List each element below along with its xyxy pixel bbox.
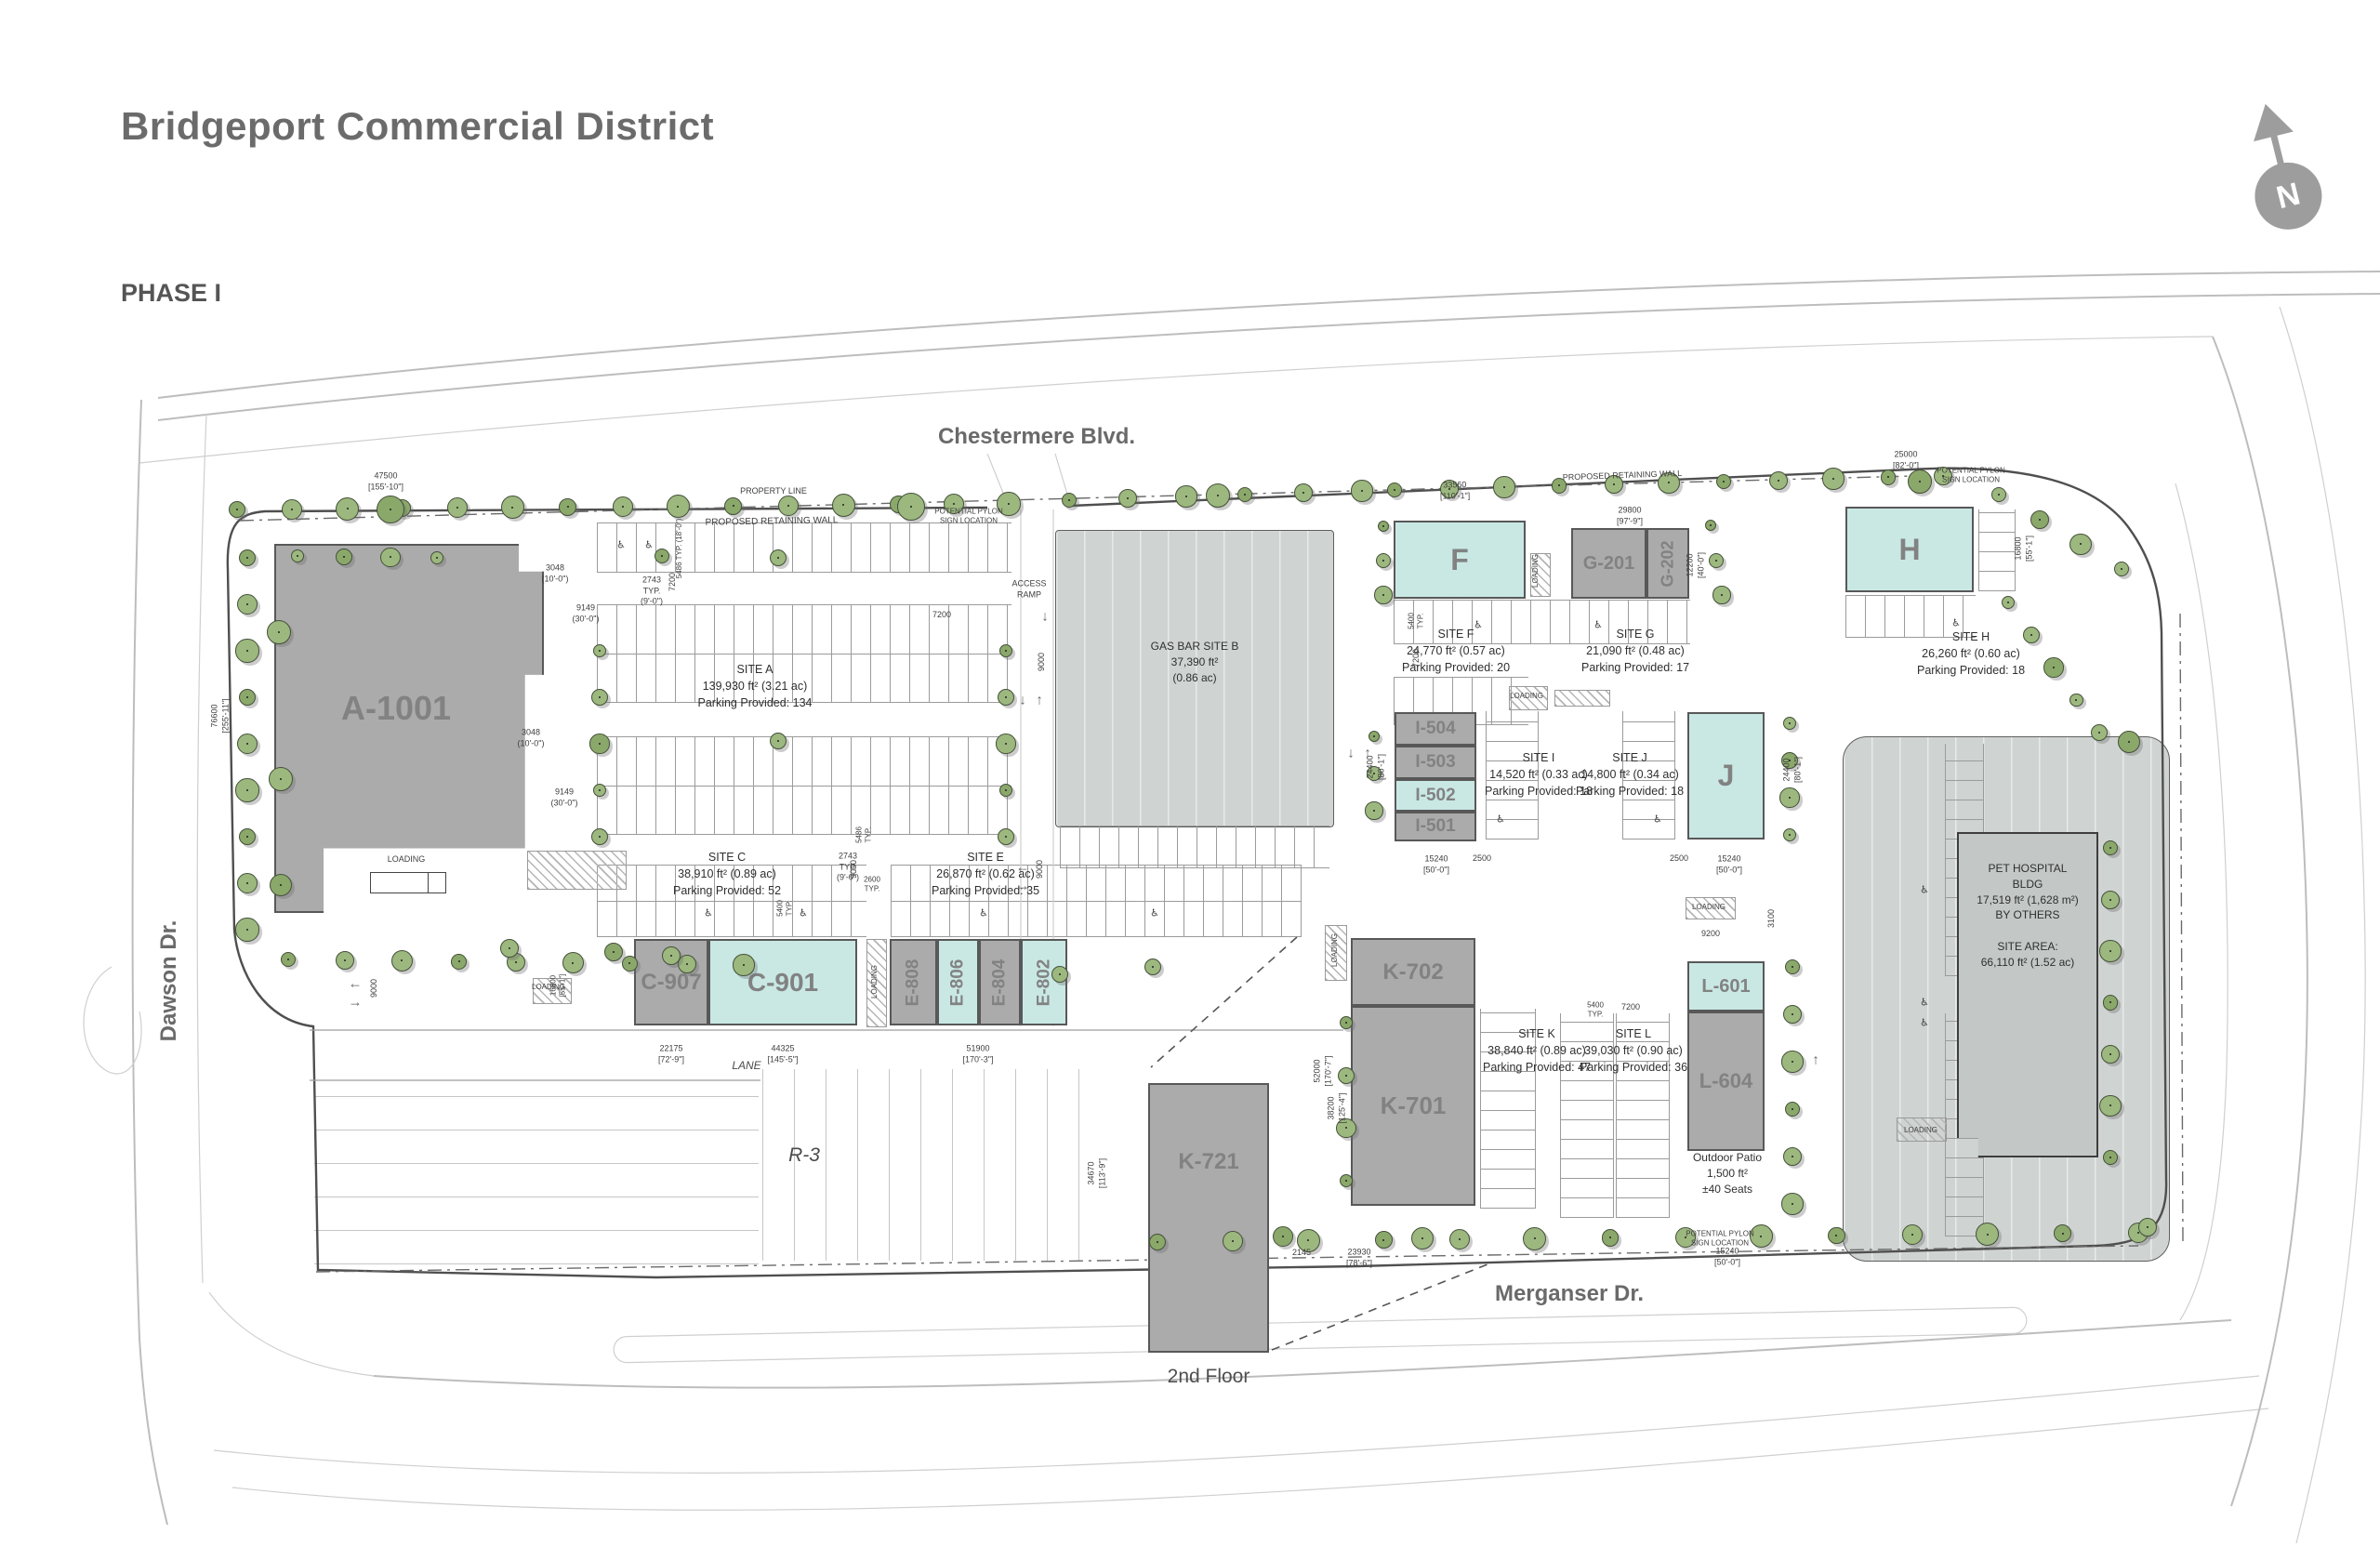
annotation-31: 9000 [1035,860,1046,879]
tree [1375,1231,1393,1249]
site-area: 26,260 ft² (0.60 ac) [1917,645,2025,662]
tree [391,950,413,972]
annotation-18: 9149 (30'-0") [551,787,578,808]
building-label-k-721: K-721 [1178,1149,1238,1175]
annotation-6: ACCESS RAMP [1011,578,1046,600]
tree [235,918,258,941]
annotation-52: 23930 [78'-6"] [1346,1247,1372,1268]
site-name: SITE C [673,849,781,866]
building-i-504: I-504 [1395,712,1476,746]
annotation-40: 2500 [1473,853,1491,865]
building-label-k-701: K-701 [1381,1091,1447,1120]
road-label-merganser: Merganser Dr. [1495,1281,1644,1307]
annotation-34: 29800 [97'-9"] [1617,505,1643,526]
second-floor-label: 2nd Floor [1168,1366,1250,1388]
tree [654,549,669,563]
annotation-33: 33560 [110'-1"] [1440,480,1471,502]
annotation-7: LOADING [388,854,426,866]
tree [1523,1227,1546,1250]
handicap-icon: ♿ [1951,617,1961,629]
tree [1051,966,1068,983]
tree [2103,995,2119,1011]
direction-arrow-icon: ↓ [1347,746,1355,761]
annotation-41: 2500 [1670,853,1688,865]
tree [1351,480,1372,501]
annotation-15: 47500 [155'-10"] [368,470,403,492]
building-label-a-1001: A-1001 [341,689,451,728]
site-label-site-c: SITE C38,910 ft² (0.89 ac)Parking Provid… [673,849,781,899]
annotation-23: 7200 [668,573,679,591]
site-label-site-g: SITE G21,090 ft² (0.48 ac)Parking Provid… [1581,626,1689,676]
tree [559,498,576,516]
tree [2069,534,2091,555]
tree [2099,1095,2121,1117]
building-i-503: I-503 [1395,746,1476,779]
tree [662,946,681,965]
direction-arrow-icon: ↑ [1364,746,1371,761]
annotation-38: 16800 [55'-1"] [549,974,569,998]
annotation-26: 5486 TYP. [855,826,875,843]
annotation-13: LOADING [1692,903,1725,912]
tree [1783,1005,1802,1024]
annotation-17: 9149 (30'-0") [573,602,600,624]
annotation-58: 5400 TYP. [1408,613,1427,629]
tree [2114,562,2130,577]
tree [447,497,468,518]
building-k-702: K-702 [1351,938,1475,1006]
building-label-f: F [1450,543,1469,577]
tree [2043,657,2063,677]
annotation-16: 76600 [255'-11"] [209,698,231,733]
annotation-24: 7200 [932,610,951,621]
site-name: SITE A [698,661,813,678]
site-label-site-a: SITE A139,930 ft² (3.21 ac)Parking Provi… [698,661,813,711]
building-l-601: L-601 [1687,961,1765,1011]
building-label-j: J [1718,759,1735,793]
tree [270,874,292,896]
handicap-icon: ♿ [616,539,626,551]
tree [2030,510,2049,529]
parking-zone-5 [1060,826,1329,868]
tree [1781,1193,1803,1214]
tree [501,496,524,519]
annotation-39: 15240 [50'-0"] [1423,853,1449,875]
direction-arrow-icon: → [1016,879,1030,894]
tree [282,499,302,520]
tree [1716,474,1732,490]
direction-arrow-icon: ← [1016,860,1030,876]
handicap-icon: ♿ [1920,884,1929,896]
tree [229,501,246,519]
site-label-site-j: SITE J14,800 ft² (0.34 ac)Parking Provid… [1576,749,1684,800]
tree [1781,1051,1803,1072]
handicap-icon: ♿ [979,907,988,919]
building-e-806: E-806 [937,939,979,1025]
loading-hatch-0 [527,851,627,890]
tree [1144,959,1161,975]
building-label-l-601: L-601 [1701,976,1750,998]
tree [832,494,855,517]
tree [770,733,787,749]
tree [1785,1102,1801,1117]
tree [267,620,291,644]
tree [604,943,623,961]
annotation-14: LOADING [1904,1126,1937,1135]
building-g-202: G-202 [1646,528,1689,599]
site-name: SITE L [1580,1025,1687,1042]
tree [1783,828,1797,842]
building-label-h: H [1898,533,1920,567]
handicap-icon: ♿ [799,907,808,919]
building-label-c-901: C-901 [747,968,818,998]
building-label-i-502: I-502 [1415,786,1455,806]
site-label-site-k: SITE K38,840 ft² (0.89 ac)Parking Provid… [1483,1025,1591,1076]
building-label-e-804: E-804 [990,959,1011,1006]
tree [1712,586,1730,603]
tree [1118,489,1137,508]
annotation-4: POTENTIAL PYLON SIGN LOCATION [1937,467,2005,486]
tree [589,734,609,753]
annotation-37: 16800 [55'-1"] [2013,535,2034,562]
site-parking: Parking Provided: 36 [1580,1059,1687,1076]
pet-hospital-label: PET HOSPITAL BLDG 17,519 ft² (1,628 m²) … [1977,861,2078,971]
site-name: SITE J [1576,749,1684,766]
tree [1368,731,1381,743]
annotation-9: LOADING [870,965,879,998]
annotation-45: 22175 [72'-9"] [658,1043,684,1064]
tree [1908,469,1932,494]
annotation-57: 7200 [1621,1002,1640,1013]
site-parking: Parking Provided: 18 [1576,783,1684,800]
tree [1062,493,1078,509]
annotation-20: 3048 (10'-0") [518,727,545,748]
site-area: 139,930 ft² (3.21 ac) [698,678,813,694]
tree [451,954,467,970]
building-f: F [1394,521,1526,599]
annotation-50: 34670 [113'-9"] [1086,1158,1107,1188]
tree [281,952,297,968]
annotation-11: LOADING [1531,554,1540,588]
site-area: 38,840 ft² (0.89 ac) [1483,1042,1591,1059]
building-k-701: K-701 [1351,1006,1475,1206]
tree [380,548,400,567]
handicap-icon: ♿ [1920,997,1929,1009]
annotation-19: 3048 (10'-0") [542,562,569,584]
tree [336,951,354,970]
site-area: 39,030 ft² (0.90 ac) [1580,1042,1687,1059]
building-label-g-201: G-201 [1583,553,1635,575]
tree [237,873,258,893]
tree [1822,468,1844,489]
direction-arrow-icon: ← [349,976,363,992]
tree [1294,483,1313,502]
annotation-46: 44325 [145'-5"] [768,1043,799,1064]
building-label-l-604: L-604 [1699,1069,1752,1093]
handicap-icon: ♿ [1653,813,1662,826]
tree [239,689,257,707]
lane-label: LANE [732,1059,760,1072]
site-area: 21,090 ft² (0.48 ac) [1581,642,1689,659]
road-label-chestermere: Chestermere Blvd. [938,424,1135,450]
tree [336,549,352,565]
tree [1387,483,1403,498]
tree [1411,1227,1434,1249]
tree [239,549,257,567]
tree [897,493,925,521]
handicap-icon: ♿ [1920,1017,1929,1029]
tree [1769,471,1788,490]
building-l-604: L-604 [1687,1011,1765,1151]
tree [2101,891,2120,909]
tree [1902,1224,1923,1245]
tree [998,689,1014,706]
site-name: SITE H [1917,628,2025,645]
tree [1709,553,1724,568]
direction-arrow-icon: → [349,995,363,1011]
tree [2002,596,2016,610]
tree [269,767,293,791]
tree [237,734,258,754]
tree [1378,521,1390,533]
building-e-808: E-808 [890,939,937,1025]
road-label-dawson: Dawson Dr. [156,920,182,1042]
tree [1273,1226,1293,1247]
building-label-i-503: I-503 [1415,752,1455,773]
annotation-21: 2743 TYP. (9'-0") [641,575,663,607]
building-label-i-504: I-504 [1415,719,1455,739]
parking-zone-10 [1978,509,2016,591]
annotation-29: 9000 [1037,653,1048,671]
tree [1365,801,1382,819]
building-label-e-808: E-808 [904,959,924,1006]
tree [1785,959,1801,975]
direction-arrow-icon: ↑ [1036,693,1043,708]
direction-arrow-icon: ↑ [1812,1052,1819,1068]
building-h: H [1845,507,1974,592]
annotation-10: LOADING [1330,933,1340,967]
site-parking: Parking Provided: 47 [1483,1059,1591,1076]
parking-zone-0 [597,522,1011,573]
annotation-54: 9200 [1701,929,1720,940]
tree [1338,1067,1355,1084]
tree [2069,694,2083,707]
handicap-icon: ♿ [1474,619,1483,631]
handicap-icon: ♿ [704,907,713,919]
gas-bar-site-b-label: GAS BAR SITE B 37,390 ft² (0.86 ac) [1151,639,1239,685]
tree [1779,787,1799,807]
tree [336,497,359,521]
annotation-47: 51900 [170'-3"] [963,1043,994,1064]
building-label-i-501: I-501 [1415,816,1455,837]
tree [2099,940,2121,961]
north-arrow-circle: N [2248,155,2329,236]
tree [237,594,258,615]
annotation-30: 9000 [849,860,860,879]
loading-truck-icon [370,872,446,893]
building-label-e-806: E-806 [948,959,969,1006]
tree [562,952,584,973]
tree [1175,485,1197,507]
annotation-48: 52000 [170'-7"] [1312,1056,1333,1087]
tree [2101,1045,2120,1064]
site-name: SITE K [1483,1025,1591,1042]
tree [667,495,690,518]
outdoor-patio-label: Outdoor Patio 1,500 ft² ±40 Seats [1693,1150,1762,1197]
annotation-22: 5486 TYP. (18'-0") [675,519,684,579]
tree [2118,731,2140,753]
annotation-44: 24400 [80'-1"] [1781,757,1803,783]
tree [1991,487,2007,503]
site-label-site-h: SITE H26,260 ft² (0.60 ac)Parking Provid… [1917,628,2025,679]
annotation-42: 15240 [50'-0"] [1716,853,1742,875]
building-i-502: I-502 [1395,779,1476,812]
tree [591,828,608,845]
tree [996,734,1015,753]
building-label-c-907: C-907 [641,970,701,996]
tree [1881,469,1897,485]
building-g-201: G-201 [1571,528,1646,599]
tree [2023,627,2040,643]
building-c-901: C-901 [708,939,857,1025]
annotation-12: LOADING [1510,692,1543,701]
tree [1237,487,1253,503]
tree [998,828,1014,845]
direction-arrow-icon: ↓ [1041,609,1049,625]
annotation-28: 5400 TYP. [776,900,796,917]
annotation-56: 5400 TYP. [1587,1001,1604,1021]
site-plan-page: Bridgeport Commercial District PHASE I N [0,0,2380,1547]
building-i-501: I-501 [1395,812,1476,841]
tree [2138,1218,2157,1236]
tree [1376,553,1391,568]
building-label-e-802: E-802 [1034,959,1054,1006]
zone-label-r3: R-3 [788,1144,820,1167]
handicap-icon: ♿ [1593,619,1603,631]
tree [235,639,258,662]
tree [591,689,608,706]
tree [1705,520,1717,532]
annotation-51: 2145 [1292,1248,1311,1259]
site-area: 38,910 ft² (0.89 ac) [673,866,781,882]
annotation-35: 25000 [82'-0"] [1893,449,1919,470]
site-parking: Parking Provided: 52 [673,882,781,899]
tree [1374,586,1392,603]
tree [2091,724,2108,741]
phase-label: PHASE I [121,279,221,308]
building-j: J [1687,712,1765,840]
handicap-icon: ♿ [644,539,654,551]
tree [235,778,258,801]
r3-future-lot-left [314,1080,759,1264]
tree [500,939,519,958]
tree [239,828,257,846]
annotation-27: 2600 TYP. [864,876,880,895]
tree [1828,1227,1845,1245]
tree [678,955,696,973]
site-parking: Parking Provided: 18 [1917,662,2025,679]
annotation-53: 15240 [50'-0"] [1714,1246,1740,1267]
site-label-site-l: SITE L39,030 ft² (0.90 ac)Parking Provid… [1580,1025,1687,1076]
site-parking: Parking Provided: 134 [698,694,813,711]
annotation-36: 12200 [40'-0"] [1685,552,1706,578]
annotation-0: PROPERTY LINE [740,486,807,497]
site-area: 14,800 ft² (0.34 ac) [1576,766,1684,783]
tree [1206,483,1230,508]
tree [1449,1229,1470,1249]
building-k-721: K-721 [1148,1083,1269,1353]
annotation-49: 38200 [125'-4"] [1326,1093,1347,1124]
tree [377,496,404,523]
handicap-icon: ♿ [1150,907,1159,919]
building-e-804: E-804 [979,939,1021,1025]
parking-zone-2 [597,736,1011,835]
tree [778,496,799,516]
north-arrow-icon: N [2231,102,2328,219]
tree [1783,717,1797,731]
annotation-3: POTENTIAL PYLON SIGN LOCATION [934,508,1003,527]
annotation-55: 3100 [1766,909,1778,928]
page-title: Bridgeport Commercial District [121,104,714,149]
building-label-k-702: K-702 [1382,959,1443,985]
site-parking: Parking Provided: 17 [1581,659,1689,676]
tree [1602,1229,1620,1247]
annotation-32: 9000 [369,979,380,998]
direction-arrow-icon: ↓ [1019,693,1026,708]
tree [1783,1147,1802,1166]
annotation-59: 7200 [1411,649,1422,668]
tree [613,496,633,517]
tree [770,549,787,566]
tree [733,954,754,975]
tree [622,956,638,972]
loading-hatch-6 [1554,690,1610,707]
annotation-1: PROPOSED RETAINING WALL [705,514,838,528]
building-label-g-202: G-202 [1659,540,1678,587]
handicap-icon: ♿ [1496,813,1505,826]
tree [724,497,742,515]
tree [1493,476,1514,497]
